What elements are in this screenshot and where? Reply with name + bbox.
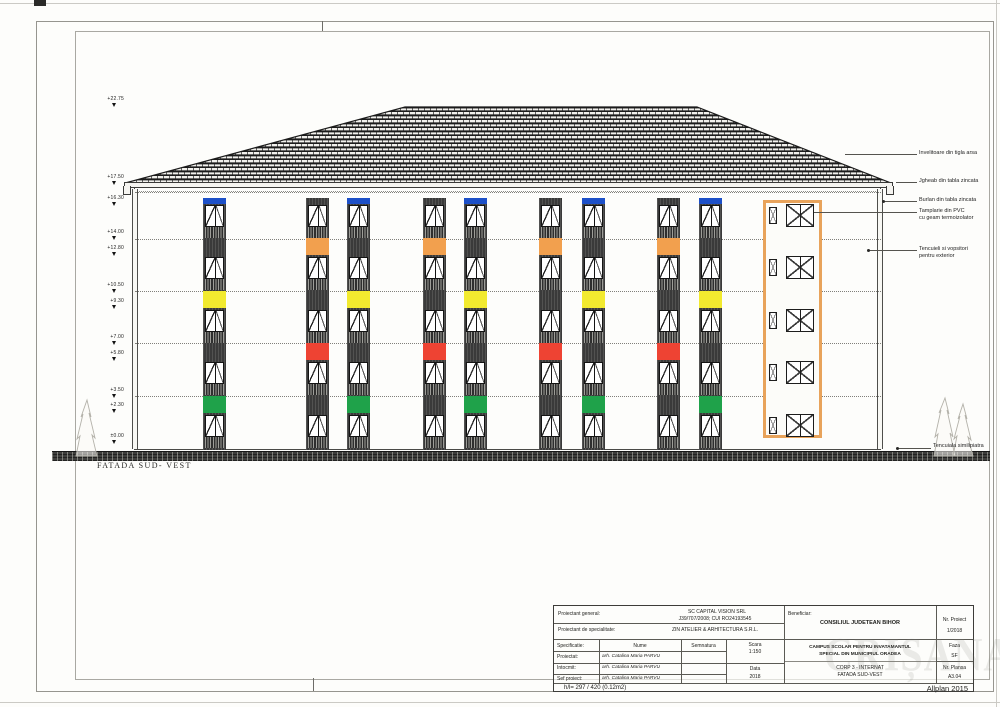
level-value: +3.50 xyxy=(88,388,124,393)
annotation-dot xyxy=(882,200,885,203)
annotation-dot xyxy=(867,249,870,252)
level-marker: +12.80 xyxy=(88,246,124,251)
level-marker: +5.80 xyxy=(88,351,124,356)
tb-data-value: 2018 xyxy=(726,674,784,680)
tb-line xyxy=(554,663,784,664)
annotation-text: Tencuiala similipiatra xyxy=(933,443,993,450)
level-value: +5.80 xyxy=(88,351,124,356)
annotation-leader xyxy=(814,212,917,213)
annotation-text: Tamplarie din PVCcu geam termoizolator xyxy=(919,208,989,222)
level-triangle-icon xyxy=(112,409,116,413)
tb-line xyxy=(784,661,936,662)
level-triangle-icon xyxy=(112,341,116,345)
level-triangle-icon xyxy=(112,394,116,398)
level-triangle-icon xyxy=(112,252,116,256)
level-marker: +22.75 xyxy=(88,97,124,102)
tb-row-label: Proiectat: xyxy=(557,654,578,660)
tree-left xyxy=(76,400,97,456)
tb-proiectant-general-label: Proiectant general: xyxy=(558,611,600,617)
level-value: +16.30 xyxy=(88,196,124,201)
tb-drawing-title-2: FATADA SUD-VEST xyxy=(784,672,936,678)
level-triangle-icon xyxy=(112,103,116,107)
level-triangle-icon xyxy=(112,202,116,206)
level-value: ±0.00 xyxy=(88,434,124,439)
tb-project-title-1: CAMPUS SCOLAR PENTRU INVATAMANTUL xyxy=(784,645,936,650)
annotation-leader xyxy=(883,201,917,202)
level-marker: ±0.00 xyxy=(88,434,124,439)
level-value: +2.30 xyxy=(88,403,124,408)
tb-row-label: Sef proiect: xyxy=(557,676,582,682)
tb-line xyxy=(936,661,973,662)
tb-faza-label: Faza xyxy=(936,643,973,649)
level-triangle-icon xyxy=(112,305,116,309)
annotation-text: Invelitoare din tigla arsa xyxy=(919,150,989,157)
tb-row-name: arh. Catalina Maria PARVU xyxy=(602,665,660,670)
allplan-credit: Allplan 2015 xyxy=(854,684,968,693)
tb-specificatie-label: Specificatie: xyxy=(557,643,584,649)
level-value: +7.00 xyxy=(88,335,124,340)
level-triangle-icon xyxy=(112,289,116,293)
annotation-dot xyxy=(896,447,899,450)
annotation-line: Tamplarie din PVC xyxy=(919,208,989,215)
tb-proiectant-general-1: SC CAPITAL VISION SRL xyxy=(654,609,780,615)
tb-project-title-2: SPECIAL DIN MUNICIPIUL ORADEA xyxy=(784,652,936,657)
tb-nr-plansa-label: Nr. Plansa xyxy=(936,665,973,671)
annotation-line: Invelitoare din tigla arsa xyxy=(919,150,989,157)
tb-line xyxy=(554,623,784,624)
level-marker: +17.50 xyxy=(88,175,124,180)
annotation-text: Tencuieli si vopsitoripentru exterior xyxy=(919,246,989,260)
tb-data-label: Data xyxy=(726,666,784,672)
tb-nr-plansa-value: A3.04 xyxy=(936,674,973,680)
level-marker: +14.00 xyxy=(88,230,124,235)
tb-row-name: arh. Catalina Maria PARVU xyxy=(602,654,660,659)
title-block: Proiectant general: SC CAPITAL VISION SR… xyxy=(553,605,974,692)
tb-proiectant-spec-label: Proiectant de specialitate: xyxy=(558,627,615,633)
tb-line xyxy=(554,674,726,675)
level-marker: +9.30 xyxy=(88,299,124,304)
annotation-line: pentru exterior xyxy=(919,253,989,260)
tb-line xyxy=(554,651,726,652)
annotation-leader xyxy=(845,154,917,155)
facade-title: FATADA SUD- VEST xyxy=(97,461,192,470)
annotation-leader xyxy=(896,182,917,183)
tb-nr-proiect-value: 1/2018 xyxy=(936,628,973,634)
level-marker: +16.30 xyxy=(88,196,124,201)
annotation-text: Jgheab din tabla zincata xyxy=(919,178,989,185)
level-value: +22.75 xyxy=(88,97,124,102)
tb-proiectant-spec-value: ZIN ATELIER & ARHITECTURA S.R.L. xyxy=(650,627,780,633)
tb-nr-proiect-label: Nr. Proiect xyxy=(936,617,973,623)
annotation-text: Burlan din tabla zincata xyxy=(919,197,989,204)
annotation-line: Tencuieli si vopsitori xyxy=(919,246,989,253)
annotation-leader xyxy=(897,448,931,449)
tb-drawing-title-1: CORP 3 - INTERNAT xyxy=(784,665,936,671)
tb-scara-label: Scara xyxy=(726,642,784,648)
tb-beneficiar-value: CONSILIUL JUDETEAN BIHOR xyxy=(784,620,936,626)
tb-beneficiar-label: Beneficiar: xyxy=(788,611,812,617)
tree-sketches xyxy=(0,0,1000,707)
level-marker: +7.00 xyxy=(88,335,124,340)
tb-row-name: arh. Catalina Maria PARVU xyxy=(602,676,660,681)
level-triangle-icon xyxy=(112,236,116,240)
tb-semnatura-header: Semnatura xyxy=(681,643,726,649)
level-marker: +2.30 xyxy=(88,403,124,408)
tb-row-label: Intocmit: xyxy=(557,665,576,671)
annotation-line: Jgheab din tabla zincata xyxy=(919,178,989,185)
scanned-elevation-sheet: +22.75+17.50+16.30+14.00+12.80+10.50+9.3… xyxy=(0,0,1000,707)
annotation-line: cu geam termoizolator xyxy=(919,215,989,222)
level-marker: +10.50 xyxy=(88,283,124,288)
level-value: +9.30 xyxy=(88,299,124,304)
level-triangle-icon xyxy=(112,181,116,185)
level-triangle-icon xyxy=(112,357,116,361)
level-triangle-icon xyxy=(112,440,116,444)
tb-scara-value: 1:150 xyxy=(726,649,784,655)
tb-nume-header: Nume xyxy=(599,643,681,649)
tb-format-info: h/l= 297 / 420 (0.12m2) xyxy=(564,685,626,691)
tb-line xyxy=(554,639,973,640)
level-value: +10.50 xyxy=(88,283,124,288)
level-value: +12.80 xyxy=(88,246,124,251)
level-value: +17.50 xyxy=(88,175,124,180)
tb-proiectant-general-2: J39/707/2008; CUI RO24193545 xyxy=(650,616,780,622)
annotation-line: Burlan din tabla zincata xyxy=(919,197,989,204)
level-marker: +3.50 xyxy=(88,388,124,393)
tb-faza-value: SF xyxy=(936,653,973,659)
level-value: +14.00 xyxy=(88,230,124,235)
annotation-leader xyxy=(868,250,917,251)
